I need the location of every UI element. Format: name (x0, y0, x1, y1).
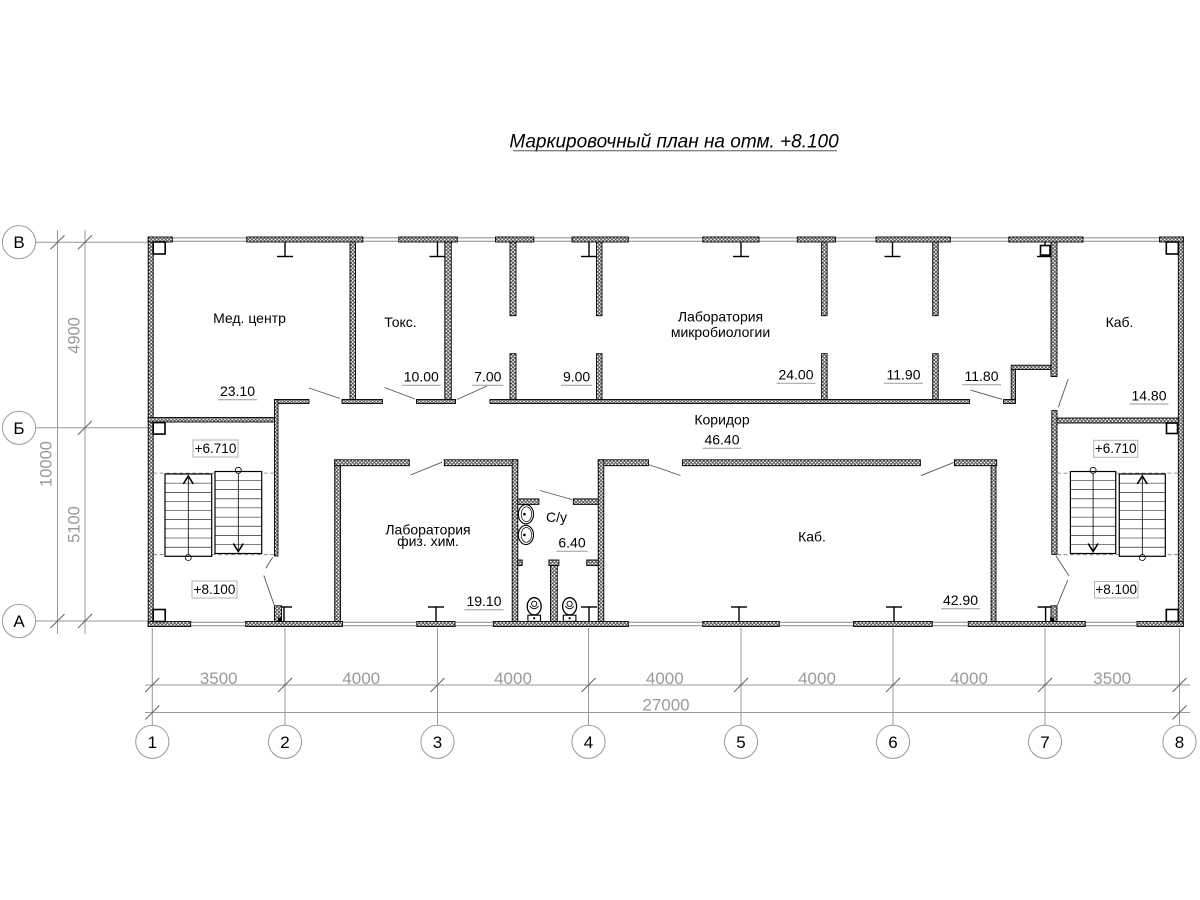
svg-text:Каб.: Каб. (1106, 314, 1134, 330)
svg-text:6: 6 (888, 733, 897, 752)
svg-text:4900: 4900 (66, 317, 84, 354)
svg-text:4: 4 (584, 733, 593, 752)
svg-text:11.80: 11.80 (965, 368, 999, 384)
svg-text:3500: 3500 (200, 669, 238, 688)
svg-text:микробиологии: микробиологии (671, 324, 770, 340)
svg-text:4000: 4000 (646, 669, 684, 688)
svg-text:3: 3 (433, 733, 442, 752)
svg-text:4000: 4000 (342, 669, 380, 688)
svg-text:5100: 5100 (66, 506, 84, 543)
svg-text:Мед. центр: Мед. центр (213, 310, 286, 326)
svg-text:1: 1 (148, 733, 157, 752)
svg-text:10000: 10000 (38, 441, 56, 487)
svg-text:4000: 4000 (950, 669, 988, 688)
svg-text:4000: 4000 (798, 669, 836, 688)
svg-text:Лаборатория: Лаборатория (678, 309, 763, 325)
svg-text:19.10: 19.10 (466, 593, 501, 609)
svg-text:Коридор: Коридор (694, 412, 750, 428)
svg-text:А: А (13, 612, 25, 631)
svg-text:8: 8 (1175, 733, 1184, 752)
svg-text:5: 5 (736, 733, 745, 752)
svg-text:4000: 4000 (494, 669, 532, 688)
svg-text:Каб.: Каб. (798, 529, 826, 545)
svg-text:2: 2 (280, 733, 289, 752)
svg-text:С/у: С/у (546, 509, 567, 525)
svg-text:Б: Б (13, 419, 24, 438)
svg-text:3500: 3500 (1093, 669, 1131, 688)
svg-text:+8.100: +8.100 (194, 582, 236, 597)
svg-text:24.00: 24.00 (778, 367, 813, 383)
svg-text:14.80: 14.80 (1131, 387, 1166, 403)
svg-text:физ. хим.: физ. хим. (397, 533, 459, 549)
svg-text:+6.710: +6.710 (1095, 441, 1137, 456)
svg-text:+8.100: +8.100 (1095, 582, 1137, 597)
svg-text:23.10: 23.10 (220, 383, 255, 399)
svg-text:7: 7 (1040, 733, 1049, 752)
svg-text:11.90: 11.90 (887, 367, 921, 383)
svg-text:6.40: 6.40 (558, 535, 585, 551)
svg-text:+6.710: +6.710 (195, 441, 237, 456)
svg-text:Маркировочный план на отм. +8.: Маркировочный план на отм. +8.100 (509, 131, 839, 152)
svg-text:46.40: 46.40 (704, 432, 739, 448)
svg-text:42.90: 42.90 (943, 592, 978, 608)
svg-text:В: В (13, 233, 24, 252)
svg-text:7.00: 7.00 (474, 369, 501, 385)
svg-text:27000: 27000 (642, 695, 689, 714)
svg-text:10.00: 10.00 (404, 369, 439, 385)
svg-text:9.00: 9.00 (563, 369, 590, 385)
svg-text:Токс.: Токс. (384, 314, 416, 330)
